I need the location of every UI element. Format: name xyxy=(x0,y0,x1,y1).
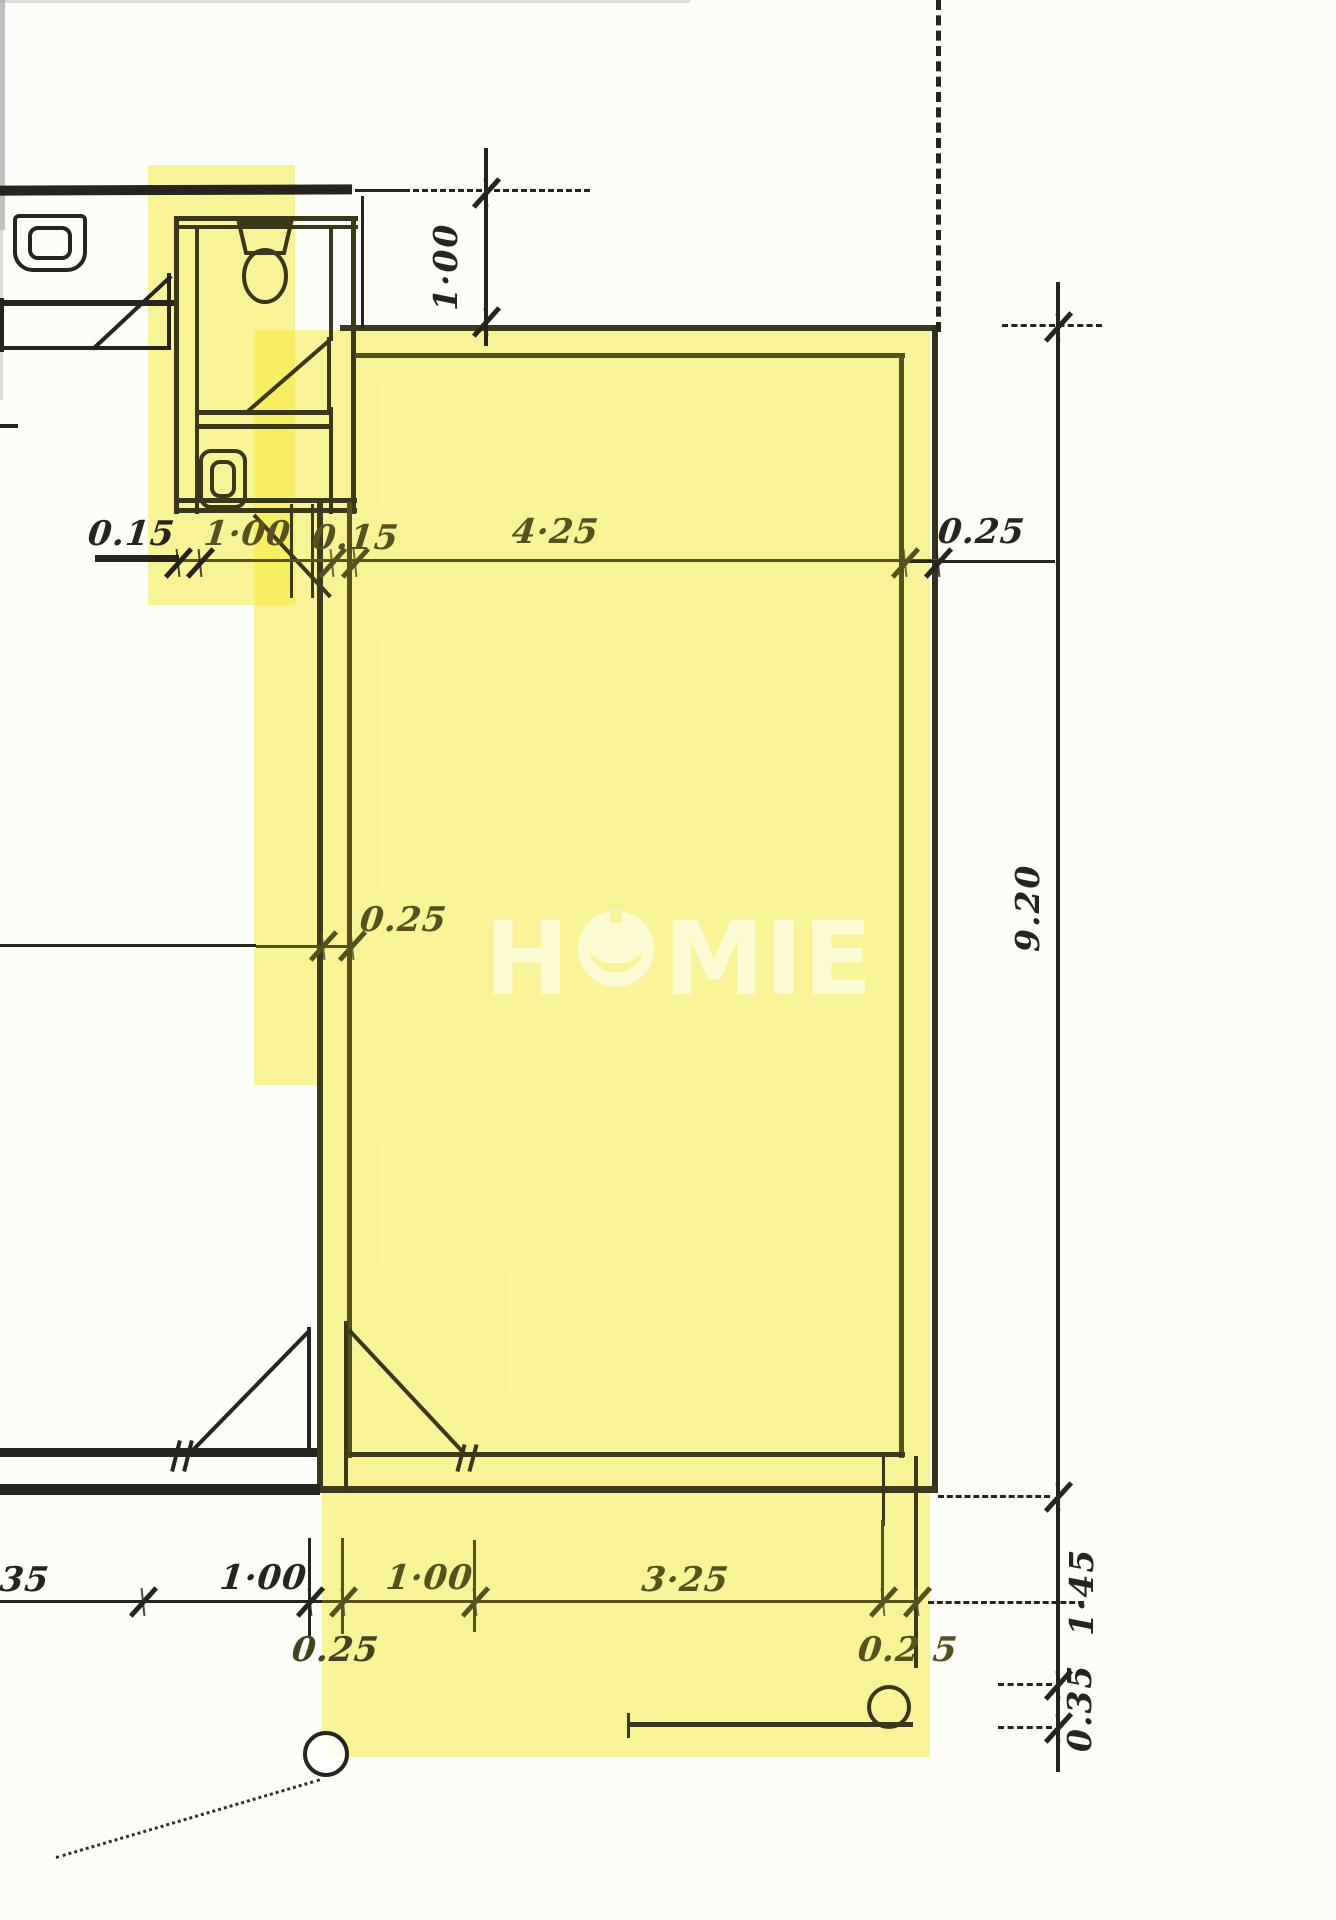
highlight-terrace xyxy=(322,1085,930,1757)
door-leaf-neighbor-bottom xyxy=(307,1327,311,1453)
dim-label-025-bottom-right: 0.2 5 xyxy=(856,1630,960,1670)
dim-tick xyxy=(902,1587,932,1617)
dim-tick xyxy=(1043,312,1073,342)
terrace-edge xyxy=(629,1722,913,1727)
toilet-icon xyxy=(233,219,297,305)
dim-label-100-wc: 1·00 xyxy=(202,514,293,554)
dim-extension-dashed xyxy=(349,958,352,1006)
wall-wc-right-inner-upper xyxy=(329,225,333,341)
dim-label-025-leftwall: 0.25 xyxy=(358,900,449,940)
dim-leader-mid-left xyxy=(0,944,256,947)
dim-leader-bottom-row xyxy=(0,1600,322,1603)
dim-leader-1497 xyxy=(938,1495,1050,1498)
wall-stub-left-edge xyxy=(0,298,4,352)
watermark-text-h: H xyxy=(484,908,569,1012)
dim-label-025-rightwall: 0.25 xyxy=(936,512,1027,552)
wall-shower-bottom-outer xyxy=(174,498,357,503)
wall-neighbor-mid xyxy=(0,300,174,306)
dim-tick xyxy=(308,931,338,961)
property-boundary-dashed xyxy=(936,0,941,332)
dim-label-35: 35 xyxy=(0,1560,51,1600)
dim-tick xyxy=(923,548,953,578)
terrace-edge-tick xyxy=(627,1713,630,1738)
column-post-left xyxy=(303,1731,349,1777)
door-leaf-wc xyxy=(327,337,331,412)
wall-shower-bottom-inner xyxy=(174,508,357,513)
wall-room-bottom-inner xyxy=(349,1452,905,1457)
wall-divider-upper xyxy=(197,410,331,415)
wall-wc-right-outer xyxy=(351,216,356,514)
watermark-text-mie: MIE xyxy=(663,908,872,1012)
dim-label-015-right: 0.15 xyxy=(310,518,401,558)
door-swing-terrace-dotted xyxy=(56,1778,321,1859)
wall-room-top-inner xyxy=(355,353,905,358)
dim-label-025-bottom-left: 0.25 xyxy=(290,1630,381,1670)
dim-tick xyxy=(471,178,501,208)
watermark-smiley-icon xyxy=(577,910,655,988)
dim-extension-line xyxy=(881,1520,884,1604)
dim-label-425: 4·25 xyxy=(510,512,601,552)
wall-room-right-outer xyxy=(932,325,938,1492)
door-leaf-neighbor-top xyxy=(167,273,171,350)
dim-tick xyxy=(1043,1482,1073,1512)
wall-threshold-black xyxy=(0,1448,317,1457)
wall-bottom-outer-black xyxy=(0,1484,320,1495)
dim-label-100-bottom-left: 1·00 xyxy=(218,1558,309,1598)
dim-tick xyxy=(128,1587,158,1617)
dim-label-325: 3·25 xyxy=(640,1560,731,1600)
dim-label-015-left: 0.15 xyxy=(86,514,177,554)
dim-leader-top-solid xyxy=(355,189,407,192)
dim-label-100-bottom-right: 1·00 xyxy=(384,1558,475,1598)
dim-label-100-top: 1·00 xyxy=(426,215,465,319)
dim-extension-line xyxy=(308,1538,311,1638)
wall-terrace-jamb-a xyxy=(882,1456,885,1526)
floor-plan: 0.15 1·00 0.15 4·25 0.25 0.25 9.20 1·45 … xyxy=(0,0,1336,1920)
dim-label-920: 9.20 xyxy=(1008,843,1047,973)
dim-line-right-vertical xyxy=(1056,282,1060,1772)
door-swing-neighbor-bottom xyxy=(191,1330,310,1452)
dim-leader-top-row xyxy=(178,559,938,562)
door-leaf-room xyxy=(344,1321,348,1491)
wall-neighbor-top xyxy=(0,184,352,195)
dim-tick xyxy=(890,548,920,578)
washbasin-inner-neighbor xyxy=(28,226,72,260)
wall-wc-left-outer xyxy=(174,216,179,514)
wall-neighbor-opening xyxy=(0,346,171,350)
dim-label-145: 1·45 xyxy=(1062,1537,1101,1647)
mark-left-edge xyxy=(0,424,18,428)
dim-label-035: 0.35 xyxy=(1060,1656,1099,1760)
watermark: H MIE xyxy=(484,900,873,1012)
wall-room-left-outer xyxy=(317,502,323,1492)
wall-room-right-inner xyxy=(899,353,904,1458)
dim-extension-line xyxy=(341,1538,344,1634)
scan-edge-top xyxy=(0,0,690,3)
wall-divider-lower xyxy=(197,424,331,429)
wall-room-bottom-outer xyxy=(317,1486,938,1493)
dim-leader-bottom-row-dash xyxy=(928,1601,1084,1604)
dim-extension-line xyxy=(473,1540,476,1632)
dim-tick xyxy=(471,307,501,337)
dim-extension-line xyxy=(361,196,364,328)
wall-room-top-outer xyxy=(340,325,938,331)
dim-leader-bottom-row-olive xyxy=(322,1600,917,1603)
